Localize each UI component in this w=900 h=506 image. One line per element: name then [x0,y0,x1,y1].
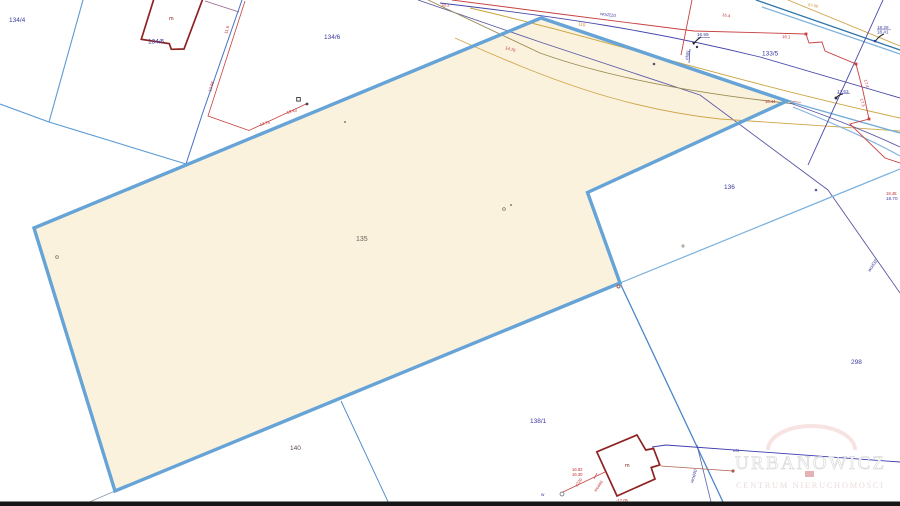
svg-text:16.99: 16.99 [697,32,709,37]
svg-text:134/4: 134/4 [9,17,26,24]
svg-text:135: 135 [356,236,368,243]
svg-text:CENTRUM NIERUCHOMOŚCI: CENTRUM NIERUCHOMOŚCI [736,480,883,490]
svg-text:16.1: 16.1 [782,34,791,39]
svg-text:138/1: 138/1 [530,418,547,425]
svg-text:m: m [169,16,174,22]
svg-text:133/5: 133/5 [762,51,779,58]
svg-text:URBANOWICZ: URBANOWICZ [735,453,885,474]
svg-text:17.63: 17.63 [837,89,849,94]
svg-text:18.70: 18.70 [886,196,898,201]
svg-text:298: 298 [851,359,862,366]
svg-text:134/5: 134/5 [148,39,165,46]
svg-text:16.44: 16.44 [765,99,776,104]
svg-text:134/6: 134/6 [324,34,341,41]
svg-text:140: 140 [290,445,301,452]
svg-text:18.41: 18.41 [877,30,889,35]
svg-text:m: m [625,463,630,469]
svg-text:16.30: 16.30 [572,472,583,477]
svg-text:136: 136 [724,184,735,191]
